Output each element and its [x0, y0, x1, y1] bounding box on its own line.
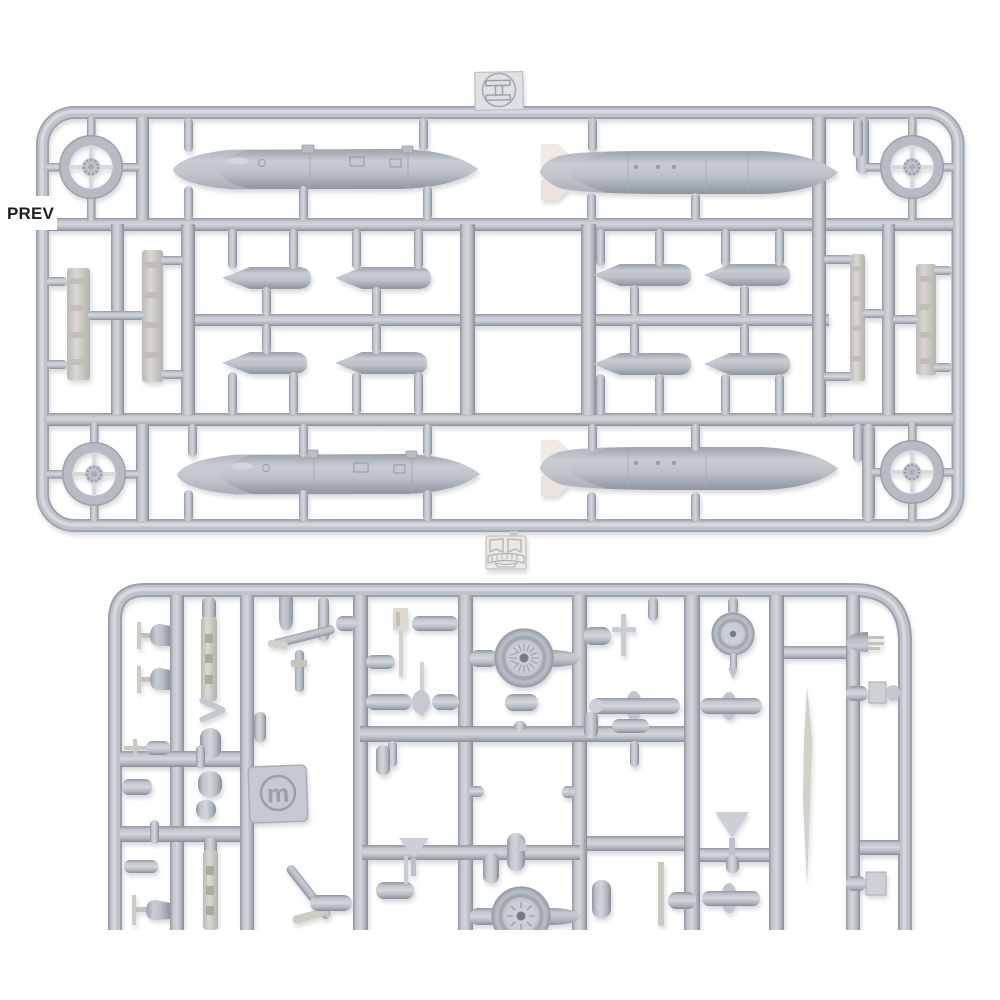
svg-text:m: m	[267, 780, 290, 809]
svg-text:PREV: PREV	[7, 204, 55, 223]
